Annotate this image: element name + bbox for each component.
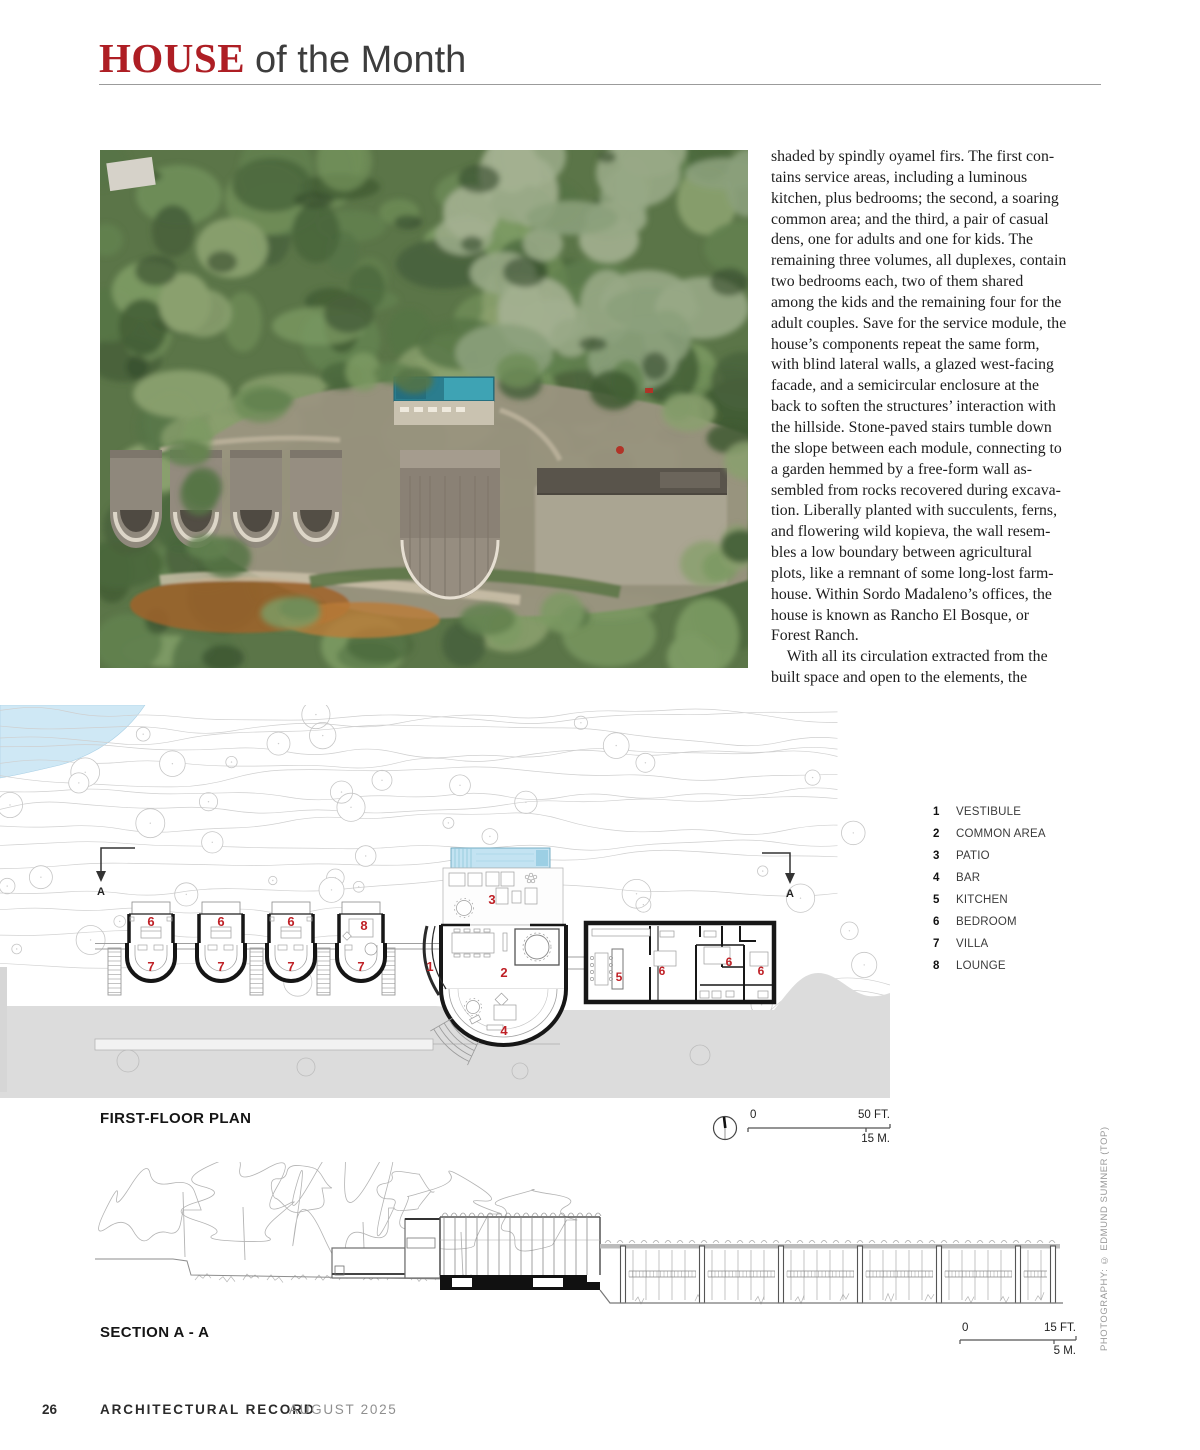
title-house: HOUSE <box>99 35 245 81</box>
retaining-wall <box>95 1039 433 1050</box>
room-number-bar: 4 <box>500 1023 508 1038</box>
svg-text:0: 0 <box>962 1322 968 1334</box>
svg-text:A: A <box>97 886 105 898</box>
north-arrow-icon <box>710 1112 740 1142</box>
section-villas-elevation <box>600 1244 1063 1303</box>
room-number-villa: 7 <box>287 959 294 974</box>
legend-row: 2COMMON AREA <box>933 828 1046 840</box>
legend-row: 6BEDROOM <box>933 916 1046 928</box>
room-number-common: 2 <box>500 965 507 980</box>
room-number-bedroom: 6 <box>287 914 294 929</box>
svg-text:50 FT.: 50 FT. <box>858 1109 890 1121</box>
section-scale-bar: 0 15 FT. 5 M. <box>956 1320 1084 1358</box>
legend-row: 1VESTIBULE <box>933 806 1046 818</box>
section-marker-left: A <box>96 848 135 898</box>
section-caption: SECTION A - A <box>100 1324 209 1341</box>
legend-row: 5KITCHEN <box>933 894 1046 906</box>
photo-red-accent <box>616 446 624 454</box>
first-floor-plan-drawing: 6 7 6 7 6 7 <box>0 705 890 1098</box>
page-number: 26 <box>42 1402 57 1417</box>
legend-row: 7VILLA <box>933 938 1046 950</box>
plan-caption: FIRST-FLOOR PLAN <box>100 1110 251 1127</box>
header-rule <box>99 84 1101 85</box>
article-column: shaded by spindly oyamel firs. The first… <box>771 147 1096 689</box>
section-mid-building <box>332 1219 440 1278</box>
page-title: HOUSEof the Month <box>99 34 466 82</box>
legend-row: 3PATIO <box>933 850 1046 862</box>
room-number-bedroom: 6 <box>758 964 765 978</box>
legend-row: 8LOUNGE <box>933 960 1046 972</box>
section-drawing <box>95 1162 1085 1314</box>
room-number-bedroom: 6 <box>217 914 224 929</box>
room-number-bedroom: 6 <box>147 914 154 929</box>
issue-date: AUGUST 2025 <box>289 1402 398 1417</box>
villa-module-2: 6 7 <box>197 902 245 981</box>
svg-text:A: A <box>786 888 794 900</box>
villa-module-4: 8 7 <box>337 902 385 981</box>
svg-text:15 FT.: 15 FT. <box>1044 1322 1076 1334</box>
magazine-page: HOUSEof the Month <box>0 0 1200 1450</box>
room-number-villa: 7 <box>357 959 364 974</box>
svg-text:15 M.: 15 M. <box>861 1133 890 1145</box>
edge-strip <box>0 967 7 1092</box>
photo-service-bar <box>537 468 727 494</box>
plan-legend: 1VESTIBULE 2COMMON AREA 3PATIO 4BAR 5KIT… <box>933 806 1046 982</box>
villa-module-1: 6 7 <box>127 902 175 981</box>
room-number-kitchen: 5 <box>616 970 623 984</box>
legend-row: 4BAR <box>933 872 1046 884</box>
room-number-villa: 7 <box>217 959 224 974</box>
plan-scale-bar: 0 50 FT. 15 M. <box>744 1106 896 1146</box>
room-number-bedroom: 6 <box>726 955 733 969</box>
aerial-photo <box>100 150 748 668</box>
photo-credit: PHOTOGRAPHY: © EDMUND SUMNER (TOP) <box>1096 1128 1113 1350</box>
room-number-lounge: 8 <box>360 918 367 933</box>
villa-module-3: 6 7 <box>267 902 315 981</box>
pool <box>451 848 550 868</box>
svg-text:0: 0 <box>750 1109 756 1121</box>
photo-main-house <box>400 450 500 600</box>
section-marker-right: A <box>762 853 795 900</box>
service-block-plan: 5 6 6 6 <box>586 923 774 1002</box>
title-of-the-month: of the Month <box>255 39 466 81</box>
svg-text:5 M.: 5 M. <box>1054 1345 1076 1357</box>
room-number-bedroom: 6 <box>659 964 666 978</box>
photo-red-accent-2 <box>645 388 653 393</box>
room-number-vestibule: 1 <box>426 959 433 974</box>
magazine-name: ARCHITECTURAL RECORD <box>100 1402 316 1417</box>
room-number-villa: 7 <box>147 959 154 974</box>
section-pavilion <box>440 1217 600 1290</box>
room-number-patio: 3 <box>488 892 495 907</box>
